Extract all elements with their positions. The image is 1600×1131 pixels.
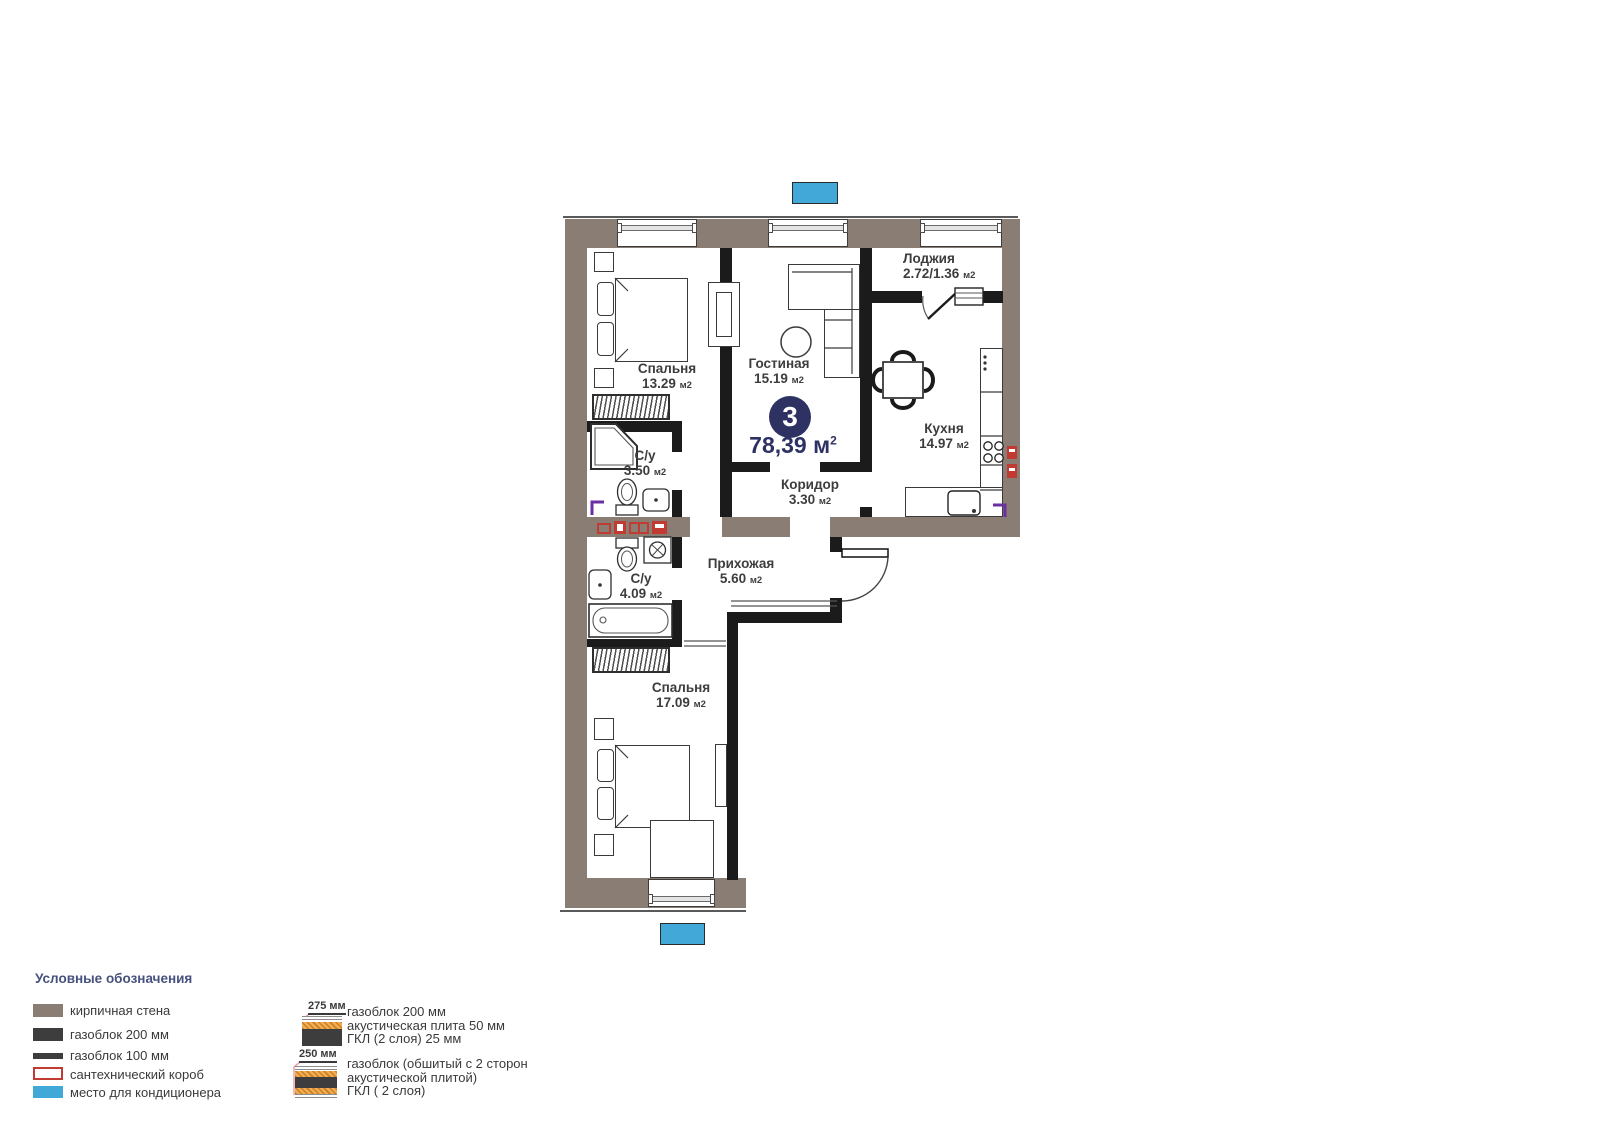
bed-bedroom1 (615, 278, 688, 362)
ac-place-swatch (33, 1086, 63, 1098)
legend: Условные обозначения кирпичная стена газ… (0, 940, 600, 1131)
dresser-bedroom2 (650, 820, 714, 878)
wall-bath2-right-a (672, 537, 682, 568)
unit-number: 3 (782, 401, 798, 433)
wall-kitchen-left (860, 248, 872, 472)
room-label-bath2: С/у 4.09 м2 (620, 571, 662, 602)
wall-hall-bottom (727, 612, 842, 623)
kitchen-counter-bottom (905, 487, 1003, 517)
room-label-living: Гостиная 15.19 м2 (748, 356, 809, 387)
nightstand (594, 368, 614, 388)
window-bedroom2 (648, 879, 715, 907)
wardrobe-bedroom2 (592, 647, 670, 673)
total-area: 78,39 м2 (749, 432, 837, 459)
pillow (597, 749, 614, 782)
wall-mid-right (722, 517, 790, 537)
wall-bath1-right-a (672, 432, 682, 452)
room-label-loggia: Лоджия 2.72/1.36 м2 (903, 251, 975, 282)
room-label-kitchen: Кухня 14.97 м2 (919, 421, 969, 452)
tv-stand-bedroom2 (715, 744, 727, 807)
wall-bath1-top (587, 421, 682, 432)
wall-bath1-right-b (672, 490, 682, 517)
wall-living-bottom-a (732, 462, 770, 472)
room-label-corridor: Коридор 3.30 м2 (781, 477, 839, 508)
nightstand (594, 718, 614, 740)
window-living (768, 219, 848, 247)
wall-bath2-bottom (587, 639, 682, 647)
brick-wall-swatch (33, 1004, 63, 1017)
wall-mid-left (565, 517, 690, 537)
wall-kitchen-bottom (830, 517, 1020, 537)
bed-bedroom2 (615, 745, 690, 828)
wall-type-dimension: 275 мм (308, 1000, 346, 1015)
wall-loggia-partition-right (980, 291, 1003, 303)
legend-item-label: место для кондиционера (70, 1085, 221, 1100)
room-label-hall: Прихожая 5.60 м2 (708, 556, 775, 587)
gasblock-200-swatch (33, 1028, 63, 1041)
nightstand (594, 834, 614, 856)
wall-exterior-right (1002, 219, 1020, 537)
pillow (597, 787, 614, 820)
ac-place-bottom (660, 923, 705, 945)
wall-bedroom2-right (727, 612, 738, 880)
ac-place-top (792, 182, 838, 204)
wall-living-bottom-b (820, 462, 860, 472)
wardrobe-bedroom1 (592, 394, 670, 420)
legend-title: Условные обозначения (35, 971, 192, 986)
nightstand (594, 252, 614, 272)
tv-stand-living-inner (716, 292, 732, 337)
wall-entry-post (830, 537, 842, 552)
legend-item-label: газоблок 100 мм (70, 1048, 169, 1063)
room-label-bath1: С/у 3.50 м2 (624, 448, 666, 479)
wall-kitchen-left-cap (860, 507, 872, 517)
room-label-bedroom1: Спальня 13.29 м2 (638, 361, 696, 392)
wall-exterior-left (565, 219, 587, 908)
pillow (597, 322, 614, 356)
room-label-bedroom2: Спальня 17.09 м2 (652, 680, 710, 711)
plumbing-box-swatch (33, 1067, 63, 1080)
wall-loggia-partition (860, 291, 922, 303)
legend-item-label: газоблок 200 мм (70, 1027, 169, 1042)
window-loggia (920, 219, 1002, 247)
gasblock-100-swatch (33, 1053, 63, 1059)
sofa-section-top (788, 264, 860, 310)
window-bedroom1 (617, 219, 697, 247)
wall-type-250-swatch (295, 1066, 337, 1099)
wall-type-dimension: 250 мм (299, 1048, 337, 1063)
wall-bath2-right-b (672, 600, 682, 647)
boundary-line-top (563, 216, 1018, 218)
boundary-line-bottom (560, 910, 746, 912)
pillow (597, 282, 614, 316)
wall-type-250-text: газоблок (обшитый с 2 сторон акустическо… (347, 1057, 528, 1098)
legend-item-label: сантехнический короб (70, 1067, 204, 1082)
wall-type-275-swatch (302, 1016, 342, 1046)
floor-plan-page: 3 78,39 м2 Спальня 13.29 м2 Гостиная 15.… (0, 0, 1600, 1131)
legend-item-label: кирпичная стена (70, 1003, 170, 1018)
wall-type-275-text: газоблок 200 мм акустическая плита 50 мм… (347, 1005, 505, 1046)
